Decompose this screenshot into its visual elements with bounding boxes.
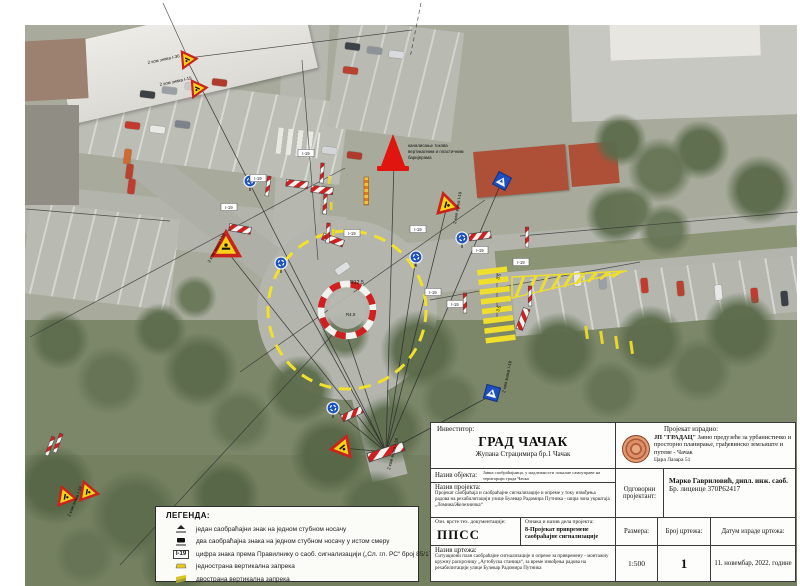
sign-code-box: I-19 <box>513 258 529 265</box>
striped-pole <box>326 223 331 243</box>
legend-item: I-19 цифра знака према Правилнику о саоб… <box>166 548 418 561</box>
company-stamp-icon <box>622 435 650 463</box>
traffic-cone-icon <box>377 134 409 171</box>
striped-pole <box>323 194 328 214</box>
designer-cell: Марко Гавриловић, дипл. инж. саоб. Бр. л… <box>664 469 795 517</box>
investor-address: Жупана Страцимира бр.1 Чачак <box>431 450 615 458</box>
legend-panel: ЛЕГЕНДА: један саобраћајни знак на једно… <box>155 506 419 582</box>
striped-pole <box>463 293 467 313</box>
pedestrian-crossing-sign <box>483 384 500 401</box>
company-cell: Пројекат израдио: ЈП "ГРАДАЦ" Јавно пред… <box>616 423 795 468</box>
vertical-barrier-orange <box>364 177 369 205</box>
investor-cell: Инвеститор: ГРАД ЧАЧАК Жупана Страцимира… <box>431 423 616 468</box>
cone-note: баријерама <box>408 155 432 160</box>
sign-code-box: I-19 <box>250 174 266 181</box>
date-label: Датум израде цртежа: <box>711 518 795 545</box>
legend-title: ЛЕГЕНДА: <box>166 511 418 520</box>
cone-note: вертикалним и пластичним <box>408 149 464 154</box>
company-description: ЈП "ГРАДАЦ" Јавно предузеће за урбанисти… <box>654 434 792 464</box>
drawing-number-label: Број цртежа: <box>658 518 711 545</box>
legend-sign-code: I-19 <box>173 550 189 559</box>
legend-item-label: цифра знака према Правилнику о саоб. сиг… <box>196 551 458 558</box>
roundabout-sign <box>327 402 339 418</box>
scale-label: Размера: <box>616 518 658 545</box>
legend-item-label: двострана вертикална запрека <box>196 576 290 583</box>
central-island <box>328 291 366 329</box>
doc-type-cell: Озн. врсте тех. документације: ППСС <box>431 518 521 545</box>
designer-label: Одговорни пројектант: <box>616 469 664 517</box>
warning-sign-triangle <box>183 79 209 103</box>
sign-code-box-icon: I-19 <box>166 550 196 559</box>
striped-pole <box>528 286 532 306</box>
barrier-board <box>286 179 309 189</box>
one-sided-barrier-icon <box>166 562 196 572</box>
two-sided-barrier-icon <box>166 574 196 584</box>
barrier-board <box>229 224 252 235</box>
legend-item-label: једнострана вертикална запрека <box>196 563 295 570</box>
object-project-cell: Назив објекта: Јавна саобраћајница, у на… <box>431 469 616 517</box>
object-label: Назив објекта: <box>431 472 483 479</box>
part-label: Ознака и назив дела пројекта: <box>521 518 615 526</box>
sign-code: I-19 <box>348 231 356 236</box>
project-label: Назив пројекта: <box>435 484 611 491</box>
legend-item: два саобраћајна знака на једном стубном … <box>166 536 418 549</box>
sign-code: I-19 <box>451 302 459 307</box>
sign-code: I-19 <box>225 205 233 210</box>
striped-pole <box>320 163 325 183</box>
double-sign-icon <box>166 537 196 547</box>
striped-pole <box>525 227 529 247</box>
sign-code-box: I-19 <box>298 149 314 156</box>
drawing-number-value: 1 <box>658 546 711 581</box>
barrier-board <box>311 185 334 195</box>
cone-note: каналисање токова <box>408 143 448 148</box>
barrier-board <box>516 307 530 330</box>
drawing-name-cell: Назив цртежа: Ситуациони план саобраћајн… <box>431 546 616 581</box>
title-block-row4: Назив цртежа: Ситуациони план саобраћајн… <box>431 546 795 581</box>
sign-code: I-19 <box>302 151 310 156</box>
striped-pole <box>45 436 55 456</box>
sign-qty-note: 2 ком знака I-19 <box>501 360 513 393</box>
sign-code-box: I-19 <box>447 300 463 307</box>
drawing-name-text: Ситуациони план саобраћајне сигнализациј… <box>435 554 611 572</box>
title-block-row1: Инвеститор: ГРАД ЧАЧАК Жупана Страцимира… <box>431 423 795 469</box>
drawing-name-label: Назив цртежа: <box>435 547 611 554</box>
doc-type-label: Озн. врсте тех. документације: <box>431 518 520 526</box>
designer-license: Бр. лиценце 370Р62417 <box>669 485 791 493</box>
sign-code-box: I-19 <box>221 203 237 210</box>
sign-qty-note: 2 ком знака I-19 <box>159 75 192 87</box>
pedestrian-crossing-sign <box>493 172 512 191</box>
roundabout-sign <box>456 232 468 248</box>
sign-code: I-19 <box>429 290 437 295</box>
designer-name: Марко Гавриловић, дипл. инж. саоб. <box>669 477 791 485</box>
legend-item: двострана вертикална запрека <box>166 573 418 586</box>
drawing-sheet: I-19 I-19 I-19 I-19 I-19 I-19 I-19 I-19 … <box>0 0 800 586</box>
part-value: 8-Пројекат привремене саобраћајне сигнал… <box>521 526 615 541</box>
made-by-label: Пројекат израдио: <box>616 423 795 433</box>
warning-sign-triangle <box>79 480 102 506</box>
striped-pole <box>53 433 63 453</box>
title-block-row3: Озн. врсте тех. документације: ППСС Озна… <box>431 518 795 546</box>
legend-item: једнострана вертикална запрека <box>166 561 418 574</box>
object-text: Јавна саобраћајница, у надлежности локал… <box>483 470 615 480</box>
investor-label: Инвеститор: <box>431 423 615 433</box>
warning-sign-triangle <box>328 434 361 467</box>
scale-value: 1:500 <box>616 546 658 581</box>
dimension-label: R12.5 <box>350 280 364 286</box>
legend-item-label: два саобраћајна знака на једном стубном … <box>196 538 390 545</box>
sign-code-box: I-19 <box>425 288 441 295</box>
sign-code-box: I-19 <box>472 246 488 253</box>
dimension-label: R4.0 <box>346 312 356 317</box>
single-sign-icon <box>166 524 196 534</box>
date-value: 11. новембар, 2022. године <box>711 546 795 581</box>
sign-code-box: I-19 <box>410 225 426 232</box>
barrier-board <box>469 231 492 241</box>
doc-type-value: ППСС <box>431 526 520 543</box>
sign-code: I-19 <box>476 248 484 253</box>
title-block-row2: Назив објекта: Јавна саобраћајница, у на… <box>431 469 795 518</box>
project-part-cell: Ознака и назив дела пројекта: 8-Пројекат… <box>521 518 616 545</box>
title-block: Инвеститор: ГРАД ЧАЧАК Жупана Страцимира… <box>430 422 796 582</box>
legend-item-label: један саобраћајни знак на једном стубном… <box>196 526 346 533</box>
sign-qty-note: 2 ком знака I-30 <box>147 53 180 65</box>
company-address: Цара Лазара 51 <box>654 457 792 464</box>
company-name: ЈП "ГРАДАЦ" <box>654 434 696 441</box>
project-text: Пројекат саобраћаја и саобраћајне сигнал… <box>435 491 611 509</box>
sign-code: I-19 <box>254 176 262 181</box>
sign-code-box: I-19 <box>344 229 360 236</box>
legend-item: један саобраћајни знак на једном стубном… <box>166 523 418 536</box>
sign-code: I-19 <box>414 227 422 232</box>
investor-name: ГРАД ЧАЧАК <box>431 434 615 450</box>
sign-code: I-19 <box>517 260 525 265</box>
